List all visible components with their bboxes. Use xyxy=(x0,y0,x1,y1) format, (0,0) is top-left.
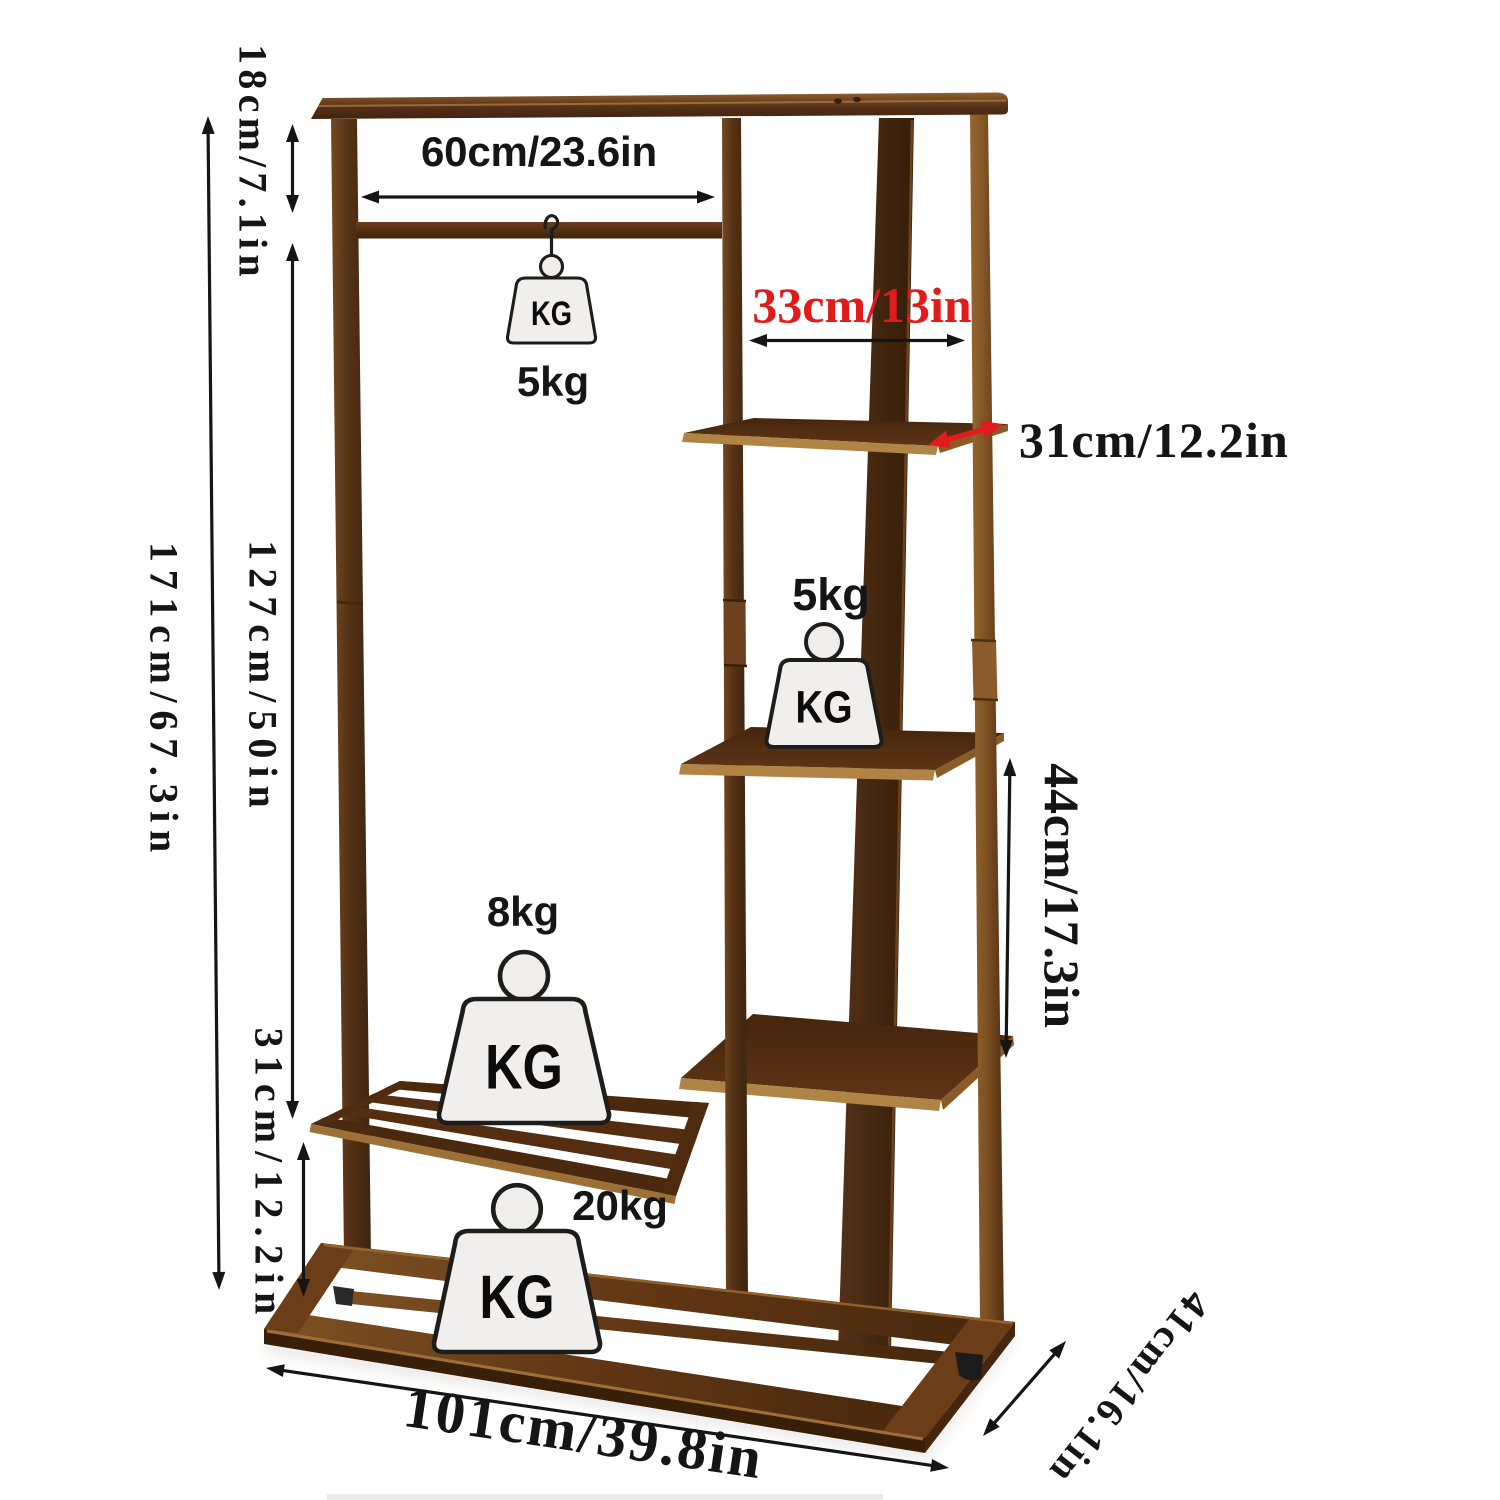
svg-text:171cm/67.3in: 171cm/67.3in xyxy=(142,542,187,860)
svg-text:60cm/23.6in: 60cm/23.6in xyxy=(421,128,657,175)
svg-text:127cm/50in: 127cm/50in xyxy=(241,540,286,816)
svg-text:KG: KG xyxy=(531,295,572,333)
svg-text:44cm/17.3in: 44cm/17.3in xyxy=(1034,763,1090,1029)
svg-text:31cm/12.2in: 31cm/12.2in xyxy=(247,1028,292,1323)
svg-text:KG: KG xyxy=(485,1032,563,1102)
svg-text:20kg: 20kg xyxy=(572,1182,668,1229)
svg-text:KG: KG xyxy=(796,682,853,733)
svg-text:5kg: 5kg xyxy=(517,358,589,405)
svg-text:KG: KG xyxy=(480,1263,555,1331)
svg-text:18cm/7.1in: 18cm/7.1in xyxy=(231,44,276,282)
svg-text:5kg: 5kg xyxy=(792,569,870,620)
svg-text:31cm/12.2in: 31cm/12.2in xyxy=(1019,412,1289,468)
svg-text:8kg: 8kg xyxy=(487,888,559,935)
svg-text:33cm/13in: 33cm/13in xyxy=(752,277,972,333)
svg-text:41cm/16.1in: 41cm/16.1in xyxy=(1040,1283,1219,1494)
